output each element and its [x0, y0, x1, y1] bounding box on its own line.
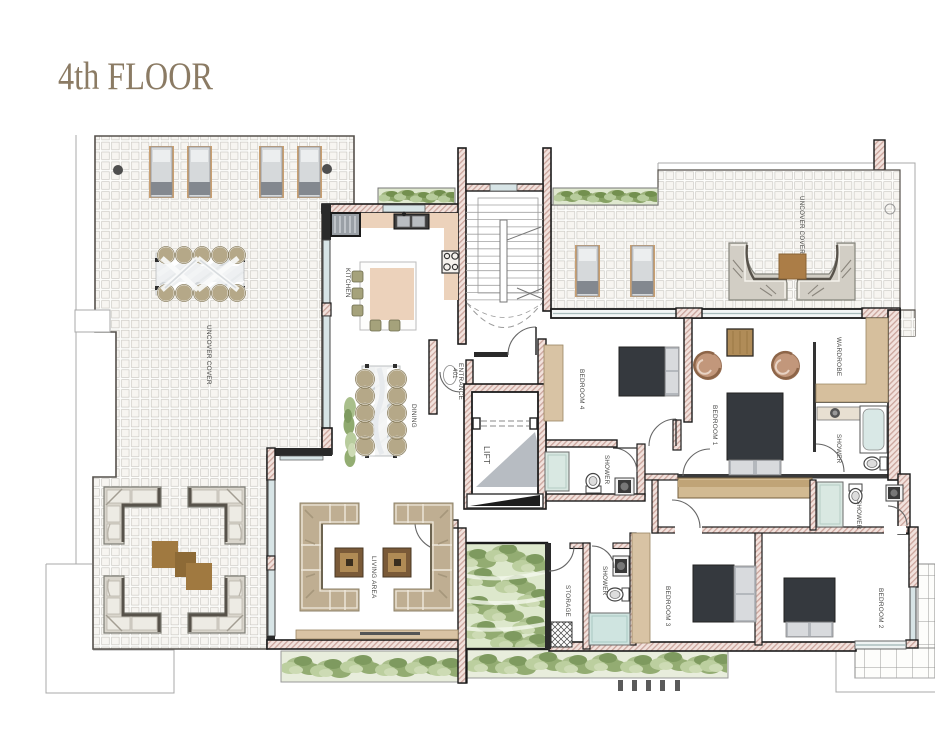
svg-text:SHOWER: SHOWER: [601, 566, 608, 596]
svg-text:WARDROBE: WARDROBE: [835, 337, 842, 376]
svg-text:UNCOVER COVER: UNCOVER COVER: [205, 325, 212, 385]
svg-text:LIFT: LIFT: [482, 446, 492, 464]
svg-text:BEDROOM 1: BEDROOM 1: [711, 405, 718, 446]
svg-text:BEDROOM 2: BEDROOM 2: [877, 588, 884, 629]
svg-text:STORAGE: STORAGE: [564, 585, 571, 617]
svg-text:LIVING AREA: LIVING AREA: [370, 556, 377, 599]
svg-text:ENTRANCE: ENTRANCE: [457, 363, 464, 400]
svg-text:4th FLOOR: 4th FLOOR: [58, 55, 213, 98]
svg-text:SHOWER: SHOWER: [855, 500, 862, 530]
svg-text:SHOWER: SHOWER: [603, 455, 610, 485]
svg-text:DINING: DINING: [410, 404, 417, 428]
svg-text:BEDROOM 4: BEDROOM 4: [578, 369, 585, 410]
svg-text:401: 401: [451, 368, 457, 379]
svg-text:BEDROOM 3: BEDROOM 3: [664, 586, 671, 627]
svg-text:KITCHEN: KITCHEN: [344, 268, 351, 298]
svg-text:UNCOVER COVER: UNCOVER COVER: [798, 196, 805, 254]
